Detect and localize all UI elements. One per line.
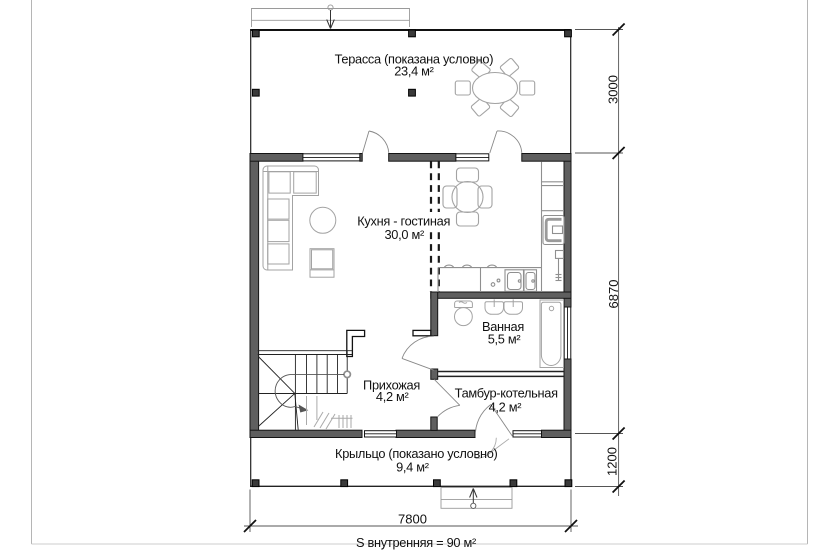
svg-text:23,4 м²: 23,4 м²	[394, 63, 434, 78]
svg-text:30,0 м²: 30,0 м²	[384, 227, 424, 242]
svg-text:7800: 7800	[398, 512, 427, 527]
svg-text:5,5 м²: 5,5 м²	[488, 332, 522, 347]
svg-text:1200: 1200	[605, 447, 620, 476]
svg-text:6870: 6870	[606, 280, 621, 309]
svg-text:4,2 м²: 4,2 м²	[489, 399, 523, 414]
svg-text:S внутренняя = 90 м²: S внутренняя = 90 м²	[356, 535, 477, 550]
svg-text:4,2 м²: 4,2 м²	[376, 389, 410, 404]
svg-text:3000: 3000	[606, 75, 621, 104]
svg-text:9,4 м²: 9,4 м²	[396, 460, 430, 475]
